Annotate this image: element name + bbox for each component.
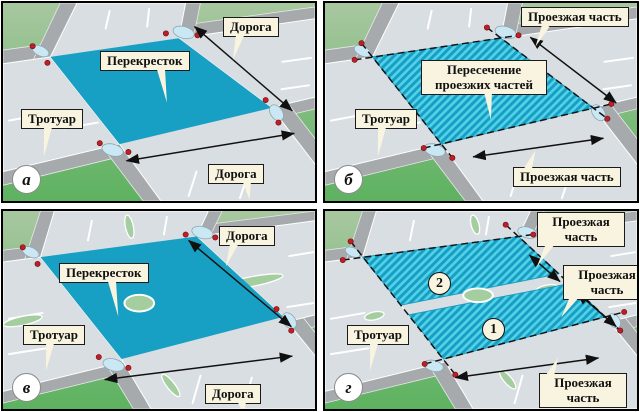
label-intersection: Перекресток <box>59 263 149 283</box>
label-road-bottom: Дорога <box>205 384 261 404</box>
panel-letter-b: б <box>334 165 363 194</box>
label-carriageway-top: Проезжая часть <box>537 212 625 247</box>
central-island <box>463 288 493 302</box>
area-marker-2: 2 <box>428 272 451 295</box>
label-road-top: Дорога <box>223 17 279 37</box>
figure-intersection-diagram: Дорога Перекресток Тротуар Дорога а <box>0 0 640 412</box>
label-carriageway-right: Проезжая часть <box>563 265 639 300</box>
label-sidewalk: Тротуар <box>23 325 85 345</box>
label-sidewalk: Тротуар <box>21 109 83 129</box>
panel-a: Дорога Перекресток Тротуар Дорога а <box>1 1 317 203</box>
panel-v: Дорога Перекресток Тротуар Дорога в <box>1 209 317 411</box>
panel-letter-g: г <box>334 373 363 402</box>
callout-tail <box>238 402 248 411</box>
panel-g: Проезжая часть Проезжая часть Тротуар Пр… <box>323 209 639 411</box>
central-island <box>124 295 154 312</box>
label-carriageway-crossing: Пересечение проезжих частей <box>421 60 547 95</box>
label-sidewalk: Тротуар <box>355 109 417 129</box>
label-carriageway-bottom: Проезжая часть <box>539 373 627 408</box>
panel-letter-a: а <box>12 165 41 194</box>
panel-b: Проезжая часть Пересечение проезжих част… <box>323 1 639 203</box>
area-marker-1: 1 <box>482 318 505 341</box>
panel-letter-v: в <box>12 373 41 402</box>
label-road-bottom: Дорога <box>208 164 264 184</box>
label-carriageway-bottom: Проезжая часть <box>513 167 621 187</box>
label-carriageway-top: Проезжая часть <box>521 7 629 27</box>
label-sidewalk: Тротуар <box>347 325 409 345</box>
label-road-top: Дорога <box>219 226 275 246</box>
label-intersection: Перекресток <box>100 51 190 71</box>
